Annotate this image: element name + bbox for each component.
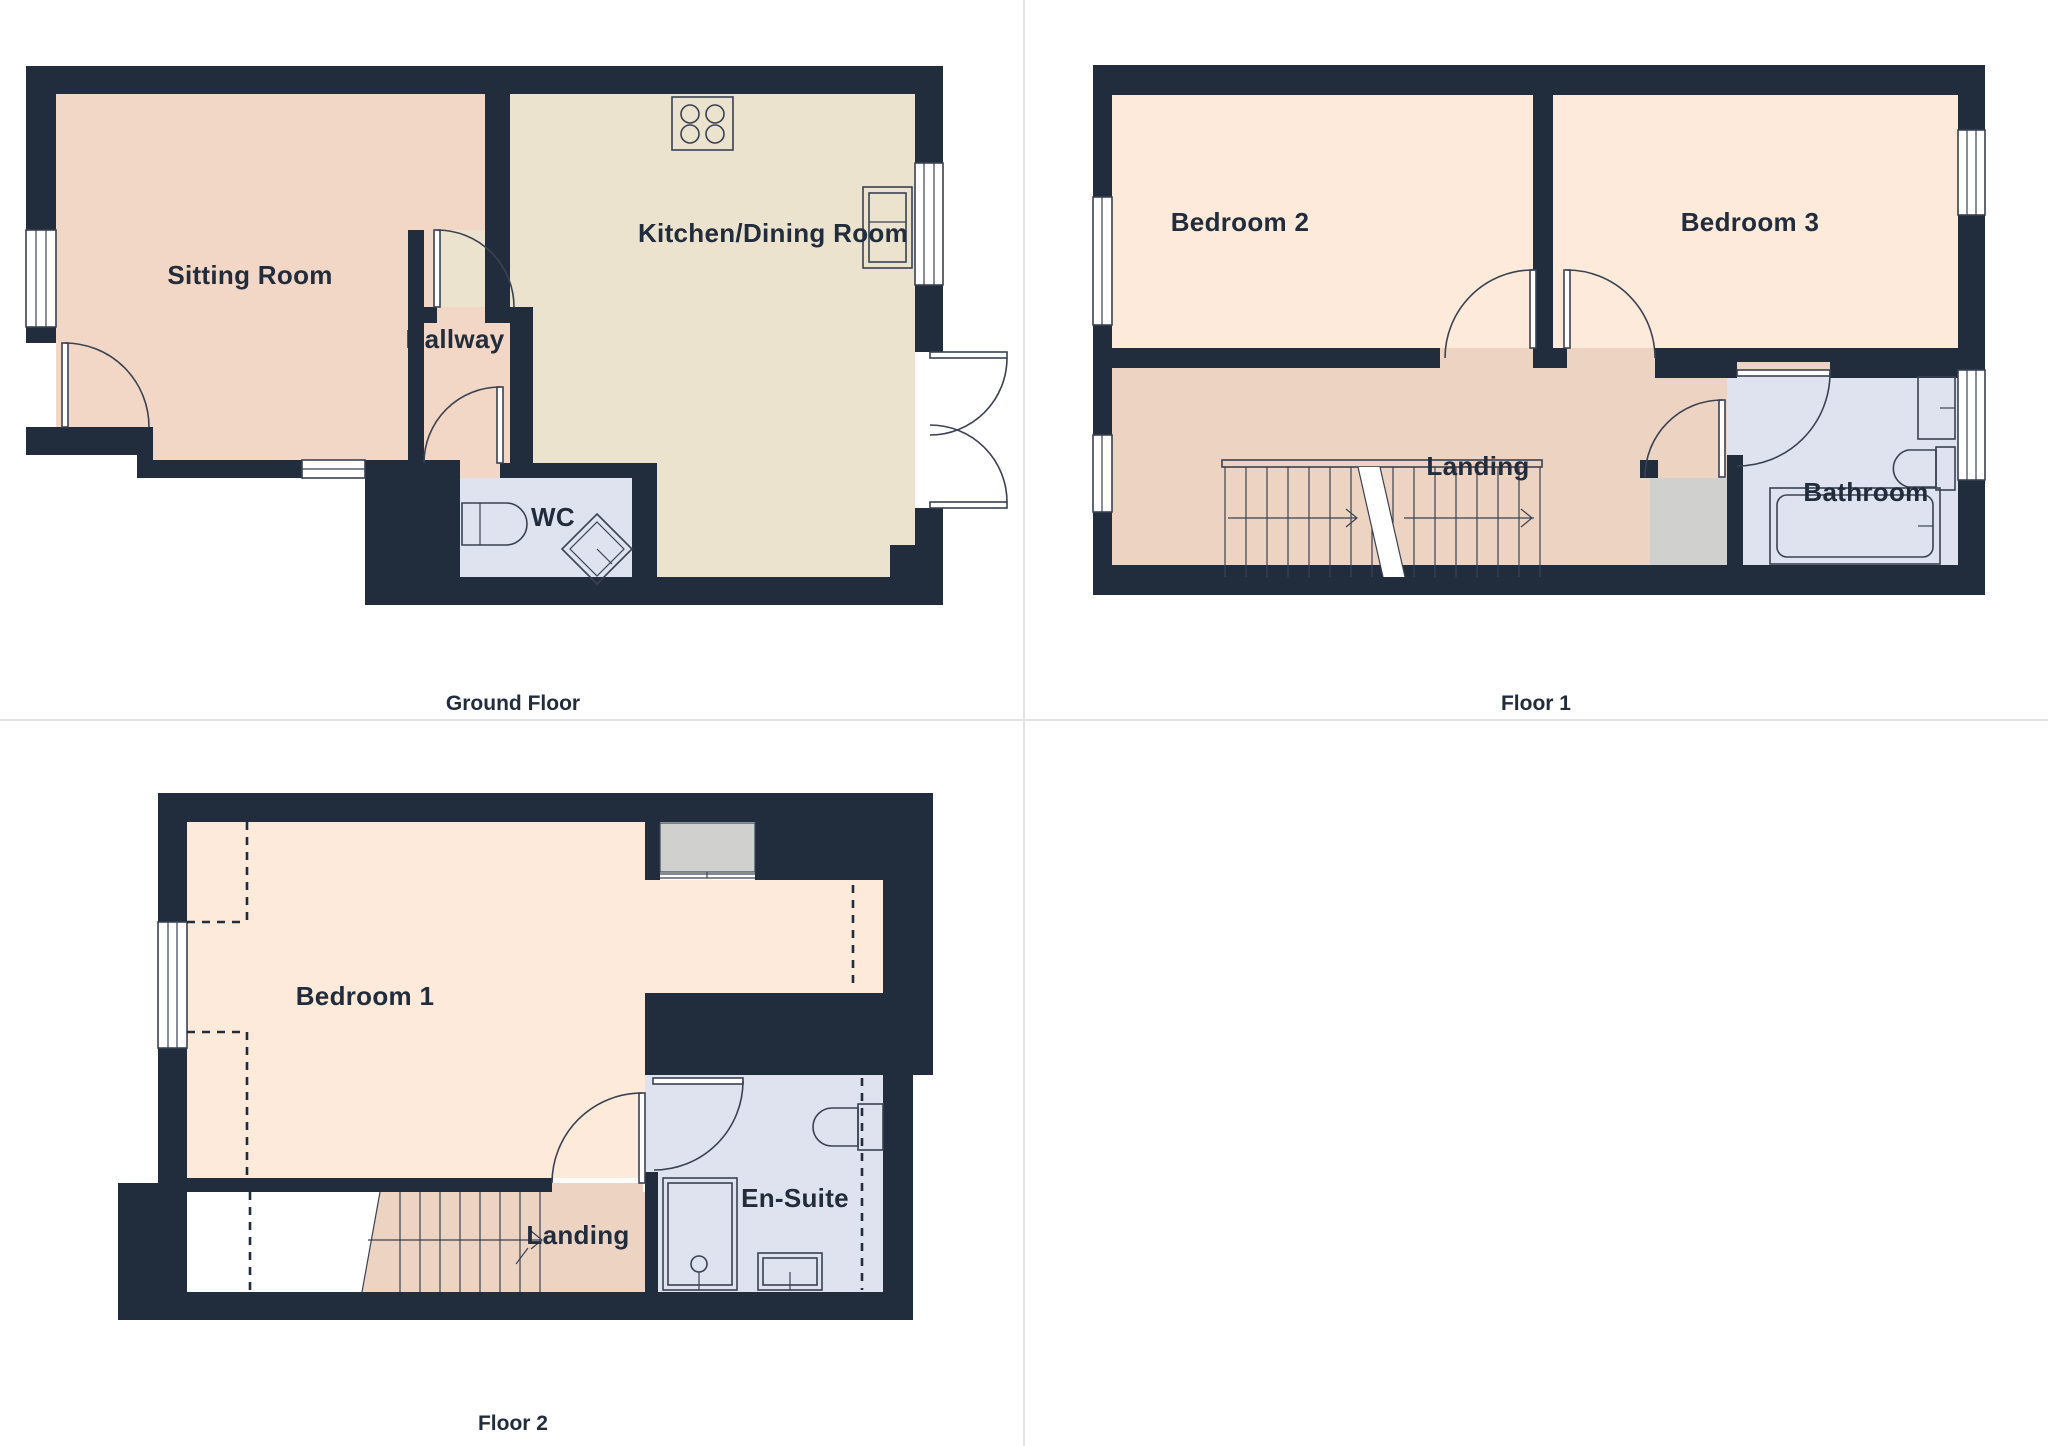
ensuite-label: En-Suite	[741, 1183, 849, 1213]
floor-1-plan: Bedroom 2 Bedroom 3 Landing Bathroom Flo…	[1024, 0, 2048, 719]
bedroom2-label: Bedroom 2	[1171, 207, 1310, 237]
window-sitting-bottom	[302, 460, 365, 478]
wc-label: WC	[531, 502, 575, 532]
window-bedroom2-left	[1093, 197, 1112, 325]
sitting-room-label: Sitting Room	[167, 260, 332, 290]
bedroom1-label: Bedroom 1	[296, 981, 435, 1011]
floor1-caption: Floor 1	[1501, 692, 1571, 715]
window-bedroom3-right	[1958, 130, 1985, 215]
ground-floor-caption: Ground Floor	[446, 692, 580, 715]
window-bedroom1-left	[158, 922, 187, 1048]
floor2-caption: Floor 2	[478, 1412, 548, 1435]
kitchen-label: Kitchen/Dining Room	[638, 218, 908, 248]
bedroom3-label: Bedroom 3	[1681, 207, 1820, 237]
window-landing-left	[1093, 435, 1112, 512]
panel-divider-vertical	[1023, 0, 1025, 1446]
hallway-label: Hallway	[406, 324, 505, 354]
window-kitchen-right	[915, 163, 943, 285]
bathroom-floor	[1727, 375, 1958, 565]
ground-floor-plan: Sitting Room Hallway WC Kitchen/Dining R…	[0, 0, 1023, 719]
landing-label: Landing	[1426, 451, 1529, 481]
window-bathroom-right	[1958, 370, 1985, 480]
floorplan-sheet: Sitting Room Hallway WC Kitchen/Dining R…	[0, 0, 2048, 1446]
bathroom-label: Bathroom	[1803, 477, 1928, 507]
french-doors	[930, 352, 1007, 508]
storage-box	[660, 823, 755, 878]
bedroom1-doorway	[552, 1183, 643, 1192]
landing-label: Landing	[526, 1220, 629, 1250]
window-sitting-left	[26, 230, 56, 327]
panel-divider-horizontal	[0, 719, 2048, 721]
airing-cupboard	[1650, 478, 1727, 565]
landing-floor	[1112, 348, 1727, 565]
floor-2-plan: Bedroom 1 Landing En-Suite Floor 2	[0, 723, 1023, 1446]
void-area	[187, 1192, 362, 1292]
